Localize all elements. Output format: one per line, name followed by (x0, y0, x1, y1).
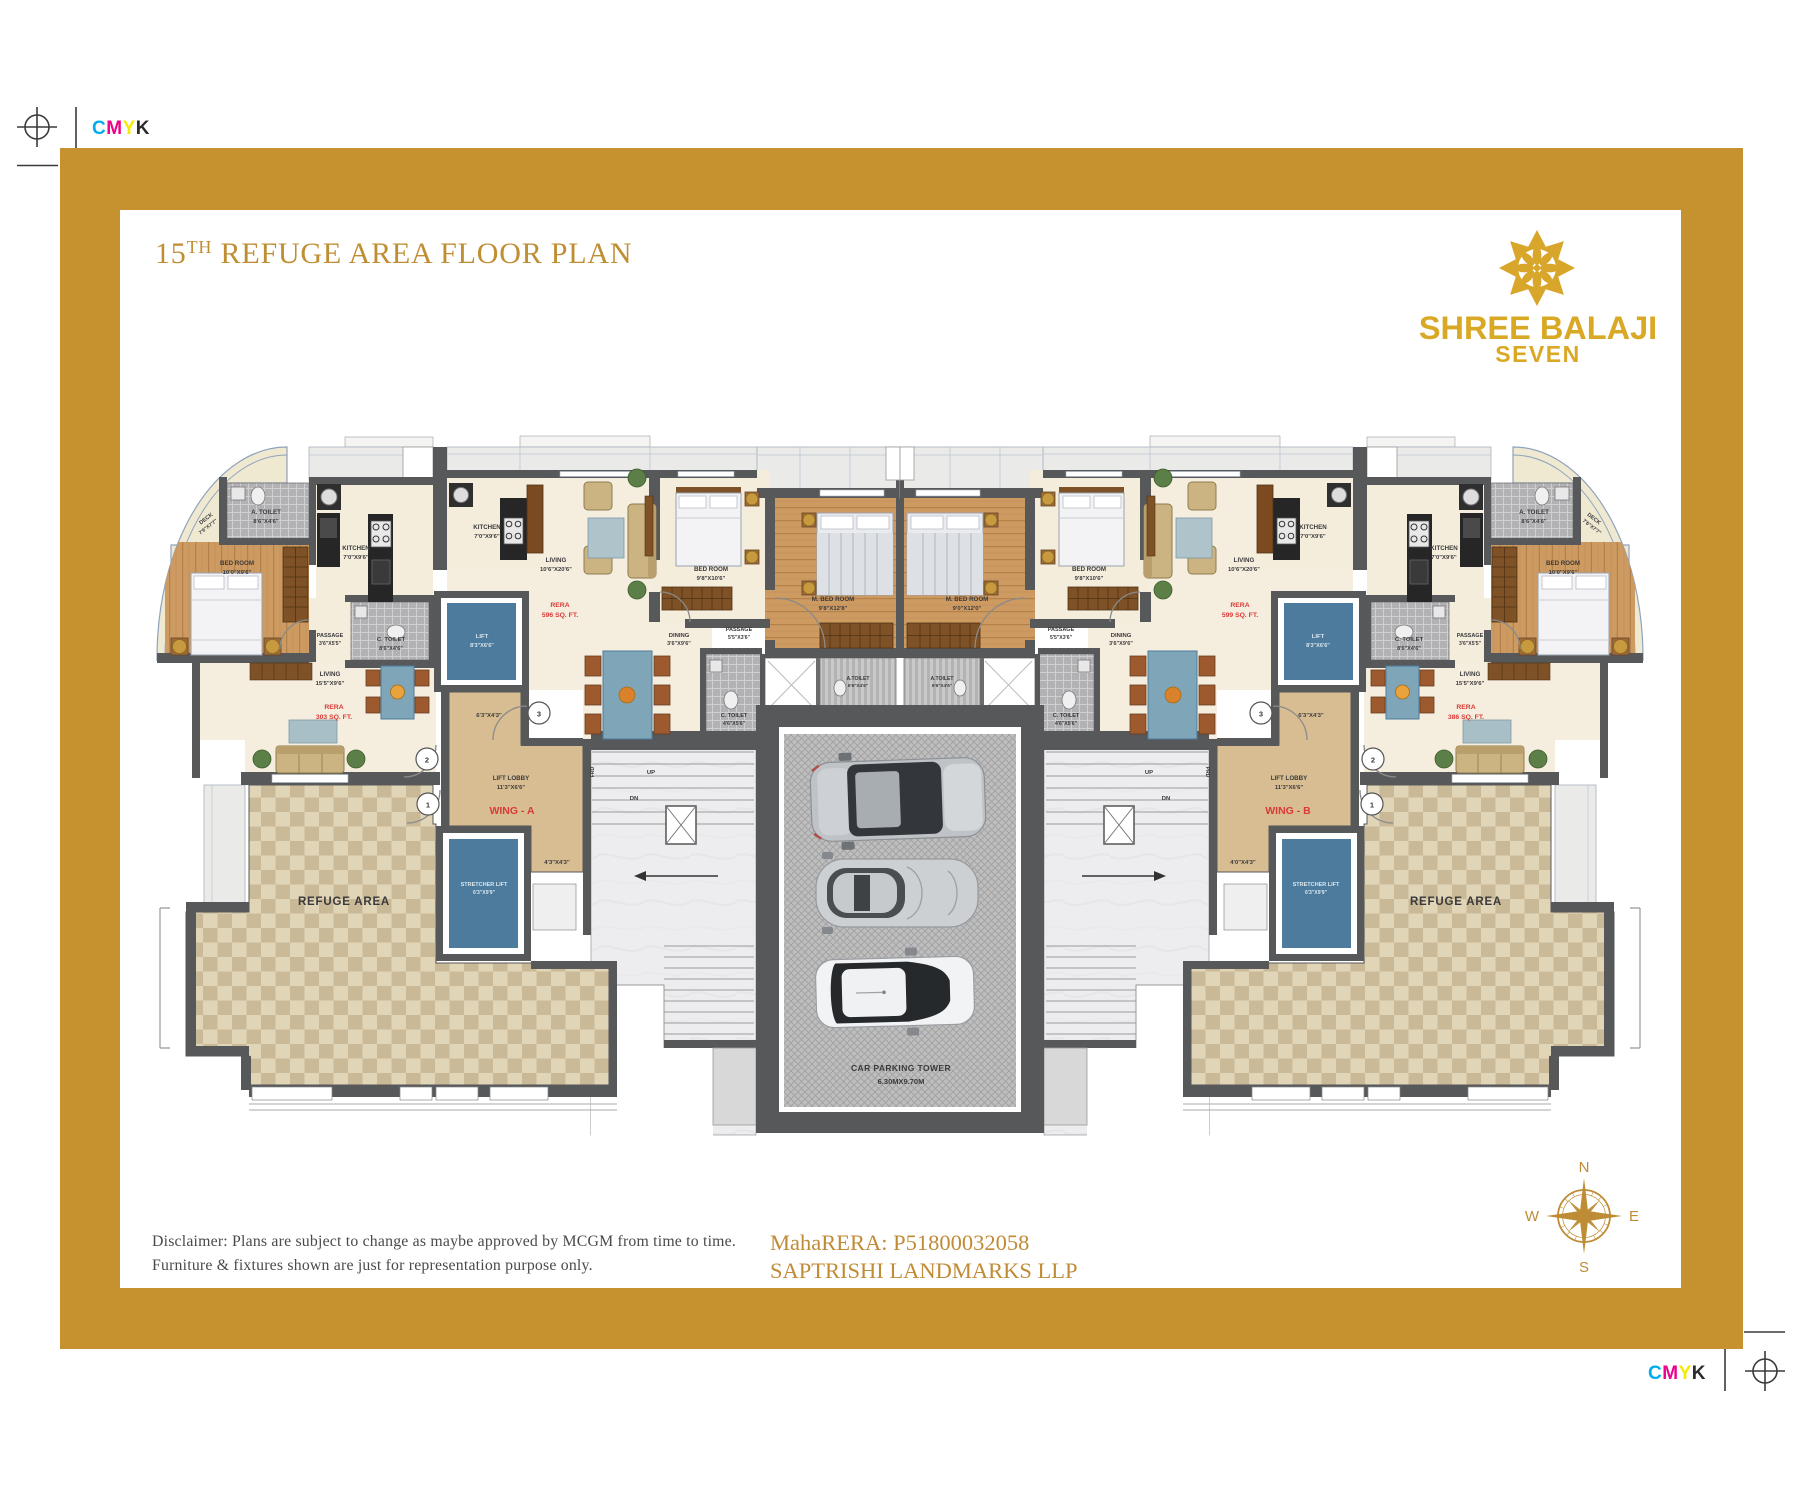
svg-text:386 SQ. FT.: 386 SQ. FT. (1448, 714, 1484, 721)
svg-text:KITCHEN: KITCHEN (1430, 545, 1458, 552)
svg-text:C. TOILET: C. TOILET (1053, 713, 1080, 719)
svg-text:SAPTRISHI LANDMARKS LLP: SAPTRISHI LANDMARKS LLP (770, 1258, 1078, 1283)
svg-text:REFUGE AREA: REFUGE AREA (298, 896, 390, 908)
svg-text:7'0"X9'6": 7'0"X9'6" (343, 555, 369, 561)
svg-text:DINING: DINING (1111, 633, 1132, 639)
svg-text:C. TOILET: C. TOILET (721, 713, 748, 719)
svg-text:A. TOILET: A. TOILET (1519, 509, 1549, 516)
svg-text:RERA: RERA (1456, 704, 1475, 711)
svg-text:CAR PARKING TOWER: CAR PARKING TOWER (851, 1063, 951, 1073)
svg-text:DN: DN (1162, 796, 1171, 802)
svg-text:15TH REFUGE AREA FLOOR PLAN: 15TH REFUGE AREA FLOOR PLAN (155, 237, 632, 270)
svg-text:LIFT LOBBY: LIFT LOBBY (493, 775, 530, 782)
svg-text:UP: UP (1145, 770, 1153, 776)
svg-text:A. TOILET: A. TOILET (251, 509, 281, 516)
svg-text:MahaRERA: P51800032058: MahaRERA: P51800032058 (770, 1230, 1029, 1255)
svg-text:9'8"X12'8": 9'8"X12'8" (819, 606, 848, 612)
svg-text:10'0"X9'6": 10'0"X9'6" (223, 570, 252, 576)
svg-text:CMYK: CMYK (92, 118, 150, 139)
svg-text:7'0"X9'6": 7'0"X9'6" (1300, 534, 1326, 540)
svg-text:FRD: FRD (590, 766, 596, 777)
svg-text:LIFT LOBBY: LIFT LOBBY (1271, 775, 1308, 782)
svg-text:REFUGE AREA: REFUGE AREA (1410, 896, 1502, 908)
svg-text:1: 1 (426, 801, 430, 810)
svg-text:SEVEN: SEVEN (1495, 341, 1580, 367)
svg-text:LIVING: LIVING (1234, 557, 1255, 564)
svg-text:M. BED ROOM: M. BED ROOM (946, 596, 989, 603)
svg-text:E: E (1629, 1208, 1639, 1225)
svg-text:6'3"X9'9": 6'3"X9'9" (473, 890, 496, 896)
svg-text:8'3"X6'6": 8'3"X6'6" (1306, 643, 1330, 649)
svg-text:3: 3 (1259, 710, 1263, 719)
svg-text:7'0"X9'6": 7'0"X9'6" (1431, 555, 1457, 561)
svg-text:6'6"X4'6": 6'6"X4'6" (932, 683, 952, 688)
svg-text:DINING: DINING (669, 633, 690, 639)
svg-text:N: N (1579, 1159, 1590, 1176)
svg-text:6'3"X9'9": 6'3"X9'9" (1305, 890, 1328, 896)
svg-text:3'6"X5'5": 3'6"X5'5" (319, 641, 342, 647)
svg-text:4'3"X4'3": 4'3"X4'3" (544, 860, 570, 866)
svg-text:LIFT: LIFT (1312, 634, 1325, 640)
svg-text:9'8"X10'6": 9'8"X10'6" (1075, 576, 1104, 582)
svg-text:11'3"X6'6": 11'3"X6'6" (497, 785, 526, 791)
svg-text:PASSAGE: PASSAGE (1457, 633, 1484, 639)
svg-text:596 SQ. FT.: 596 SQ. FT. (542, 612, 578, 619)
svg-text:DN: DN (630, 796, 639, 802)
svg-text:Disclaimer: Plans are subject: Disclaimer: Plans are subject to change … (152, 1233, 736, 1250)
svg-text:4'6"X5'6": 4'6"X5'6" (1055, 721, 1078, 727)
svg-text:BED ROOM: BED ROOM (1072, 566, 1106, 573)
svg-text:4'0"X4'3": 4'0"X4'3" (1230, 860, 1256, 866)
svg-text:599 SQ. FT.: 599 SQ. FT. (1222, 612, 1258, 619)
svg-text:W: W (1525, 1208, 1540, 1225)
svg-text:LIVING: LIVING (546, 557, 567, 564)
svg-text:6'3"X4'3": 6'3"X4'3" (1298, 713, 1324, 719)
svg-text:RERA: RERA (550, 602, 569, 609)
svg-text:KITCHEN: KITCHEN (473, 524, 501, 531)
svg-text:2: 2 (425, 756, 429, 765)
svg-text:4'6"X5'6": 4'6"X5'6" (723, 721, 746, 727)
svg-text:PASSAGE: PASSAGE (726, 627, 753, 633)
svg-text:LIVING: LIVING (1460, 671, 1481, 678)
svg-text:PRD: PRD (1204, 767, 1210, 778)
svg-text:11'3"X6'6": 11'3"X6'6" (1275, 785, 1304, 791)
svg-text:BED ROOM: BED ROOM (220, 560, 254, 567)
svg-text:15'5"X9'6": 15'5"X9'6" (1456, 681, 1485, 687)
svg-text:LIFT: LIFT (476, 634, 489, 640)
svg-text:PASSAGE: PASSAGE (1048, 627, 1075, 633)
svg-text:WING - A: WING - A (489, 805, 535, 817)
svg-text:A.TOILET: A.TOILET (846, 676, 870, 682)
svg-text:8'6"X4'6": 8'6"X4'6" (1521, 519, 1547, 525)
svg-text:A.TOILET: A.TOILET (930, 676, 954, 682)
svg-text:BED ROOM: BED ROOM (1546, 560, 1580, 567)
svg-text:RERA: RERA (324, 704, 343, 711)
svg-text:10'6"X20'6": 10'6"X20'6" (1228, 567, 1260, 573)
svg-text:8'3"X6'6": 8'3"X6'6" (470, 643, 494, 649)
svg-text:9'8"X10'6": 9'8"X10'6" (697, 576, 726, 582)
svg-text:RERA: RERA (1230, 602, 1249, 609)
svg-text:Furniture & fixtures shown are: Furniture & fixtures shown are just for … (152, 1257, 593, 1274)
svg-text:8'6"X4'6": 8'6"X4'6" (1397, 646, 1421, 652)
svg-text:2: 2 (1371, 756, 1375, 765)
svg-text:CMYK: CMYK (1648, 1363, 1706, 1384)
svg-text:3: 3 (537, 710, 541, 719)
svg-text:6.30MX9.70M: 6.30MX9.70M (878, 1077, 925, 1086)
svg-text:303 SQ. FT.: 303 SQ. FT. (316, 714, 352, 721)
svg-text:9'0"X12'0": 9'0"X12'0" (953, 606, 982, 612)
svg-text:M. BED ROOM: M. BED ROOM (812, 596, 855, 603)
svg-text:KITCHEN: KITCHEN (342, 545, 370, 552)
svg-text:8'6"X4'6": 8'6"X4'6" (253, 519, 279, 525)
svg-text:5'5"X3'6": 5'5"X3'6" (1050, 635, 1073, 641)
svg-text:3'6"X9'6": 3'6"X9'6" (1109, 641, 1133, 647)
svg-text:C. TOILET: C. TOILET (1395, 637, 1424, 643)
svg-text:3'6"X9'6": 3'6"X9'6" (667, 641, 691, 647)
svg-text:6'3"X4'3": 6'3"X4'3" (476, 713, 502, 719)
svg-text:UP: UP (647, 770, 655, 776)
svg-text:PASSAGE: PASSAGE (317, 633, 344, 639)
svg-text:C. TOILET: C. TOILET (377, 637, 406, 643)
svg-text:10'0"X9'6": 10'0"X9'6" (1549, 570, 1578, 576)
svg-text:S: S (1579, 1259, 1589, 1276)
svg-text:WING - B: WING - B (1265, 805, 1311, 817)
svg-text:STRETCHER LIFT: STRETCHER LIFT (1293, 882, 1340, 888)
svg-text:BED ROOM: BED ROOM (694, 566, 728, 573)
svg-text:LIVING: LIVING (320, 671, 341, 678)
svg-text:1: 1 (1370, 801, 1374, 810)
svg-text:6'6"X4'6": 6'6"X4'6" (848, 683, 868, 688)
svg-text:5'5"X3'6": 5'5"X3'6" (728, 635, 751, 641)
svg-text:10'6"X20'6": 10'6"X20'6" (540, 567, 572, 573)
svg-text:3'6"X5'5": 3'6"X5'5" (1459, 641, 1482, 647)
svg-text:STRETCHER LIFT: STRETCHER LIFT (461, 882, 508, 888)
svg-text:15'5"X9'6": 15'5"X9'6" (316, 681, 345, 687)
svg-text:KITCHEN: KITCHEN (1299, 524, 1327, 531)
svg-text:8'6"X4'6": 8'6"X4'6" (379, 646, 403, 652)
svg-text:7'0"X9'6": 7'0"X9'6" (474, 534, 500, 540)
